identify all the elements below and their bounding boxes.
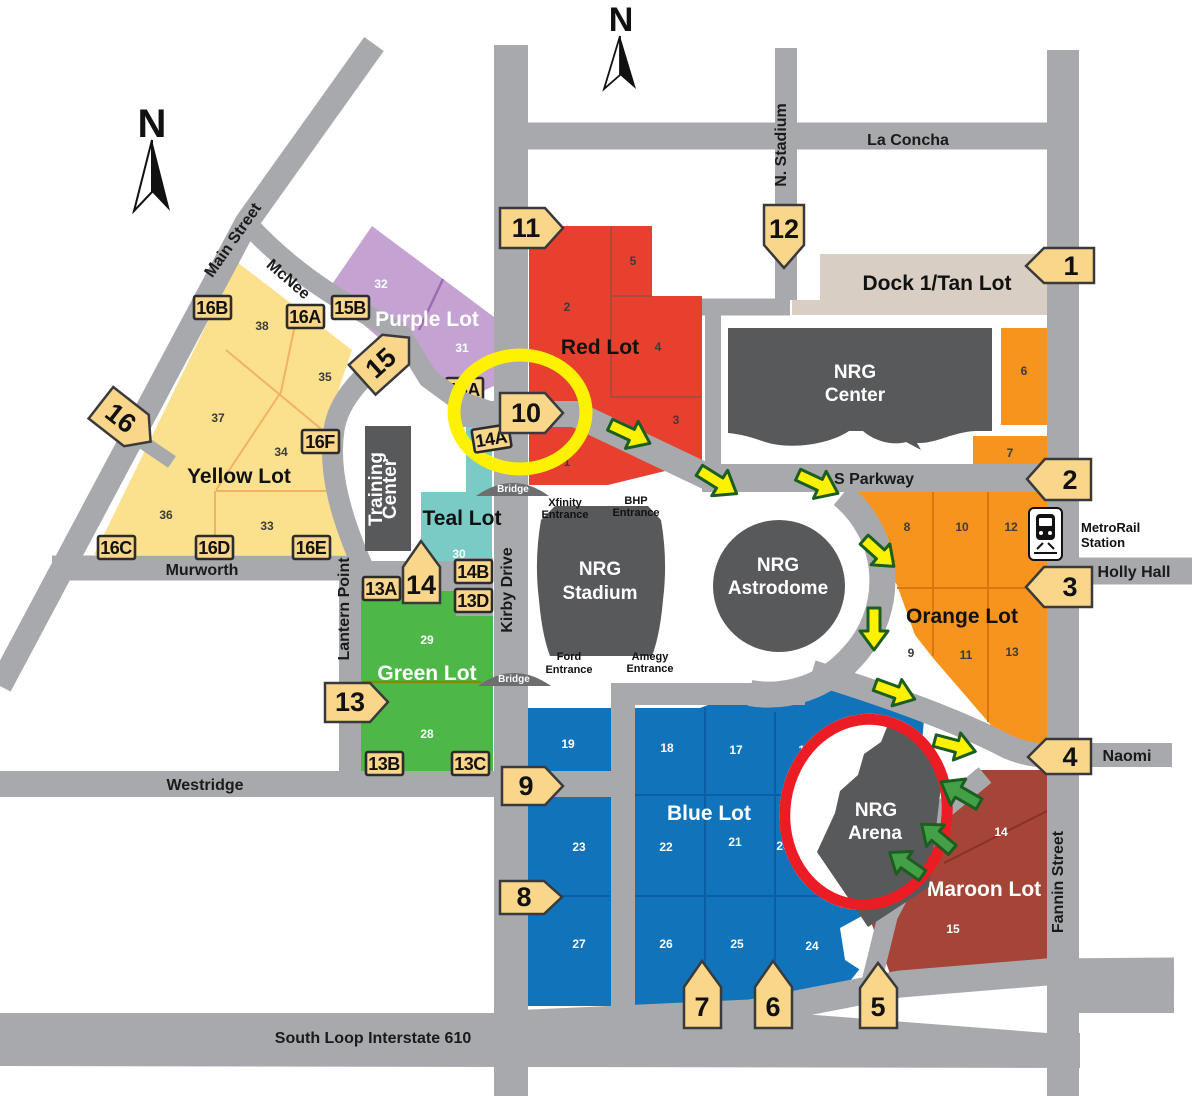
svg-text:31: 31	[455, 341, 469, 355]
svg-text:34: 34	[274, 445, 288, 459]
svg-text:Entrance: Entrance	[612, 507, 659, 519]
svg-text:9: 9	[908, 646, 915, 660]
svg-text:23: 23	[572, 840, 586, 854]
svg-text:13: 13	[335, 687, 365, 717]
svg-text:11: 11	[512, 213, 541, 243]
svg-text:NRG: NRG	[834, 362, 876, 383]
svg-text:8: 8	[904, 520, 911, 534]
svg-text:8: 8	[516, 882, 531, 912]
svg-text:Center: Center	[380, 458, 401, 519]
svg-text:Entrance: Entrance	[626, 663, 673, 675]
svg-text:26: 26	[659, 937, 673, 951]
svg-text:Holly Hall: Holly Hall	[1098, 564, 1171, 581]
svg-text:Center: Center	[825, 385, 886, 406]
svg-text:13: 13	[1005, 645, 1019, 659]
svg-text:Astrodome: Astrodome	[728, 578, 828, 599]
svg-text:5: 5	[870, 992, 885, 1022]
svg-text:35: 35	[318, 370, 332, 384]
svg-text:Stadium: Stadium	[563, 583, 638, 604]
svg-text:38: 38	[255, 319, 269, 333]
svg-text:South Loop Interstate 610: South Loop Interstate 610	[275, 1030, 472, 1047]
svg-text:Yellow Lot: Yellow Lot	[187, 465, 291, 488]
svg-text:11: 11	[960, 648, 973, 662]
svg-text:7: 7	[694, 992, 709, 1022]
svg-text:Red Lot: Red Lot	[561, 336, 639, 359]
svg-text:Green Lot: Green Lot	[377, 662, 476, 685]
svg-text:15: 15	[946, 922, 960, 936]
svg-text:Murworth: Murworth	[166, 562, 239, 579]
svg-text:BHP: BHP	[624, 495, 647, 507]
svg-text:4: 4	[1062, 742, 1077, 772]
svg-text:27: 27	[572, 937, 586, 951]
svg-text:21: 21	[728, 835, 742, 849]
svg-text:Fannin Street: Fannin Street	[1050, 830, 1067, 933]
svg-text:2: 2	[1062, 465, 1077, 495]
svg-text:25: 25	[730, 937, 744, 951]
svg-text:33: 33	[260, 519, 274, 533]
svg-text:Bridge: Bridge	[498, 674, 530, 685]
svg-text:12: 12	[769, 214, 799, 244]
svg-text:4: 4	[655, 340, 662, 354]
svg-text:17: 17	[729, 743, 743, 757]
svg-text:7: 7	[1007, 446, 1014, 460]
svg-text:16F: 16F	[305, 432, 335, 452]
svg-text:La Concha: La Concha	[867, 132, 949, 149]
svg-text:N: N	[138, 102, 167, 146]
svg-text:S Parkway: S Parkway	[834, 471, 914, 488]
svg-text:16A: 16A	[289, 307, 321, 327]
svg-text:15B: 15B	[334, 298, 366, 318]
svg-text:Blue Lot: Blue Lot	[667, 802, 751, 825]
svg-text:MetroRail: MetroRail	[1081, 520, 1140, 535]
svg-text:Station: Station	[1081, 535, 1125, 550]
svg-text:13D: 13D	[457, 591, 489, 611]
svg-text:19: 19	[561, 737, 575, 751]
svg-text:10: 10	[955, 520, 969, 534]
svg-text:37: 37	[211, 411, 225, 425]
svg-text:Lantern Point: Lantern Point	[336, 557, 353, 661]
svg-text:16B: 16B	[196, 298, 228, 318]
svg-text:10: 10	[511, 398, 541, 428]
svg-text:Naomi: Naomi	[1103, 748, 1152, 765]
svg-text:24: 24	[805, 939, 819, 953]
svg-text:32: 32	[374, 277, 388, 291]
svg-text:Westridge: Westridge	[166, 777, 243, 794]
svg-text:2: 2	[564, 300, 571, 314]
svg-text:14: 14	[406, 570, 436, 600]
svg-text:13C: 13C	[454, 754, 486, 774]
svg-text:N. Stadium: N. Stadium	[773, 103, 790, 187]
svg-text:Ford: Ford	[557, 651, 581, 663]
svg-text:6: 6	[765, 992, 780, 1022]
svg-text:28: 28	[420, 727, 434, 741]
svg-text:Teal Lot: Teal Lot	[423, 507, 502, 530]
svg-text:3: 3	[673, 413, 680, 427]
svg-text:14: 14	[994, 825, 1008, 839]
svg-text:9: 9	[518, 771, 533, 801]
svg-text:N: N	[609, 1, 634, 39]
svg-text:Entrance: Entrance	[541, 509, 588, 521]
svg-text:22: 22	[659, 840, 673, 854]
svg-text:Maroon Lot: Maroon Lot	[927, 878, 1041, 901]
svg-text:29: 29	[420, 633, 434, 647]
svg-text:1: 1	[1063, 251, 1078, 281]
svg-text:Amegy: Amegy	[632, 651, 670, 663]
svg-text:NRG: NRG	[855, 800, 897, 821]
svg-text:Bridge: Bridge	[497, 484, 529, 495]
svg-text:3: 3	[1062, 572, 1077, 602]
svg-text:16E: 16E	[296, 538, 327, 558]
svg-text:Purple Lot: Purple Lot	[375, 308, 479, 331]
svg-text:13B: 13B	[368, 754, 400, 774]
svg-text:Xfinity: Xfinity	[548, 497, 582, 509]
svg-text:14B: 14B	[457, 562, 489, 582]
svg-text:NRG: NRG	[757, 555, 799, 576]
svg-text:12: 12	[1004, 520, 1018, 534]
svg-text:16C: 16C	[100, 538, 132, 558]
svg-text:Arena: Arena	[848, 823, 902, 844]
svg-text:18: 18	[660, 741, 674, 755]
svg-text:NRG: NRG	[579, 559, 621, 580]
svg-text:6: 6	[1021, 364, 1028, 378]
svg-text:13A: 13A	[365, 579, 397, 599]
svg-text:Dock 1/Tan Lot: Dock 1/Tan Lot	[863, 272, 1012, 295]
svg-text:Kirby Drive: Kirby Drive	[499, 547, 516, 632]
svg-text:5: 5	[630, 254, 637, 268]
svg-text:Entrance: Entrance	[545, 664, 592, 676]
svg-text:36: 36	[159, 508, 173, 522]
svg-text:16D: 16D	[198, 538, 230, 558]
svg-text:Orange Lot: Orange Lot	[906, 605, 1018, 628]
